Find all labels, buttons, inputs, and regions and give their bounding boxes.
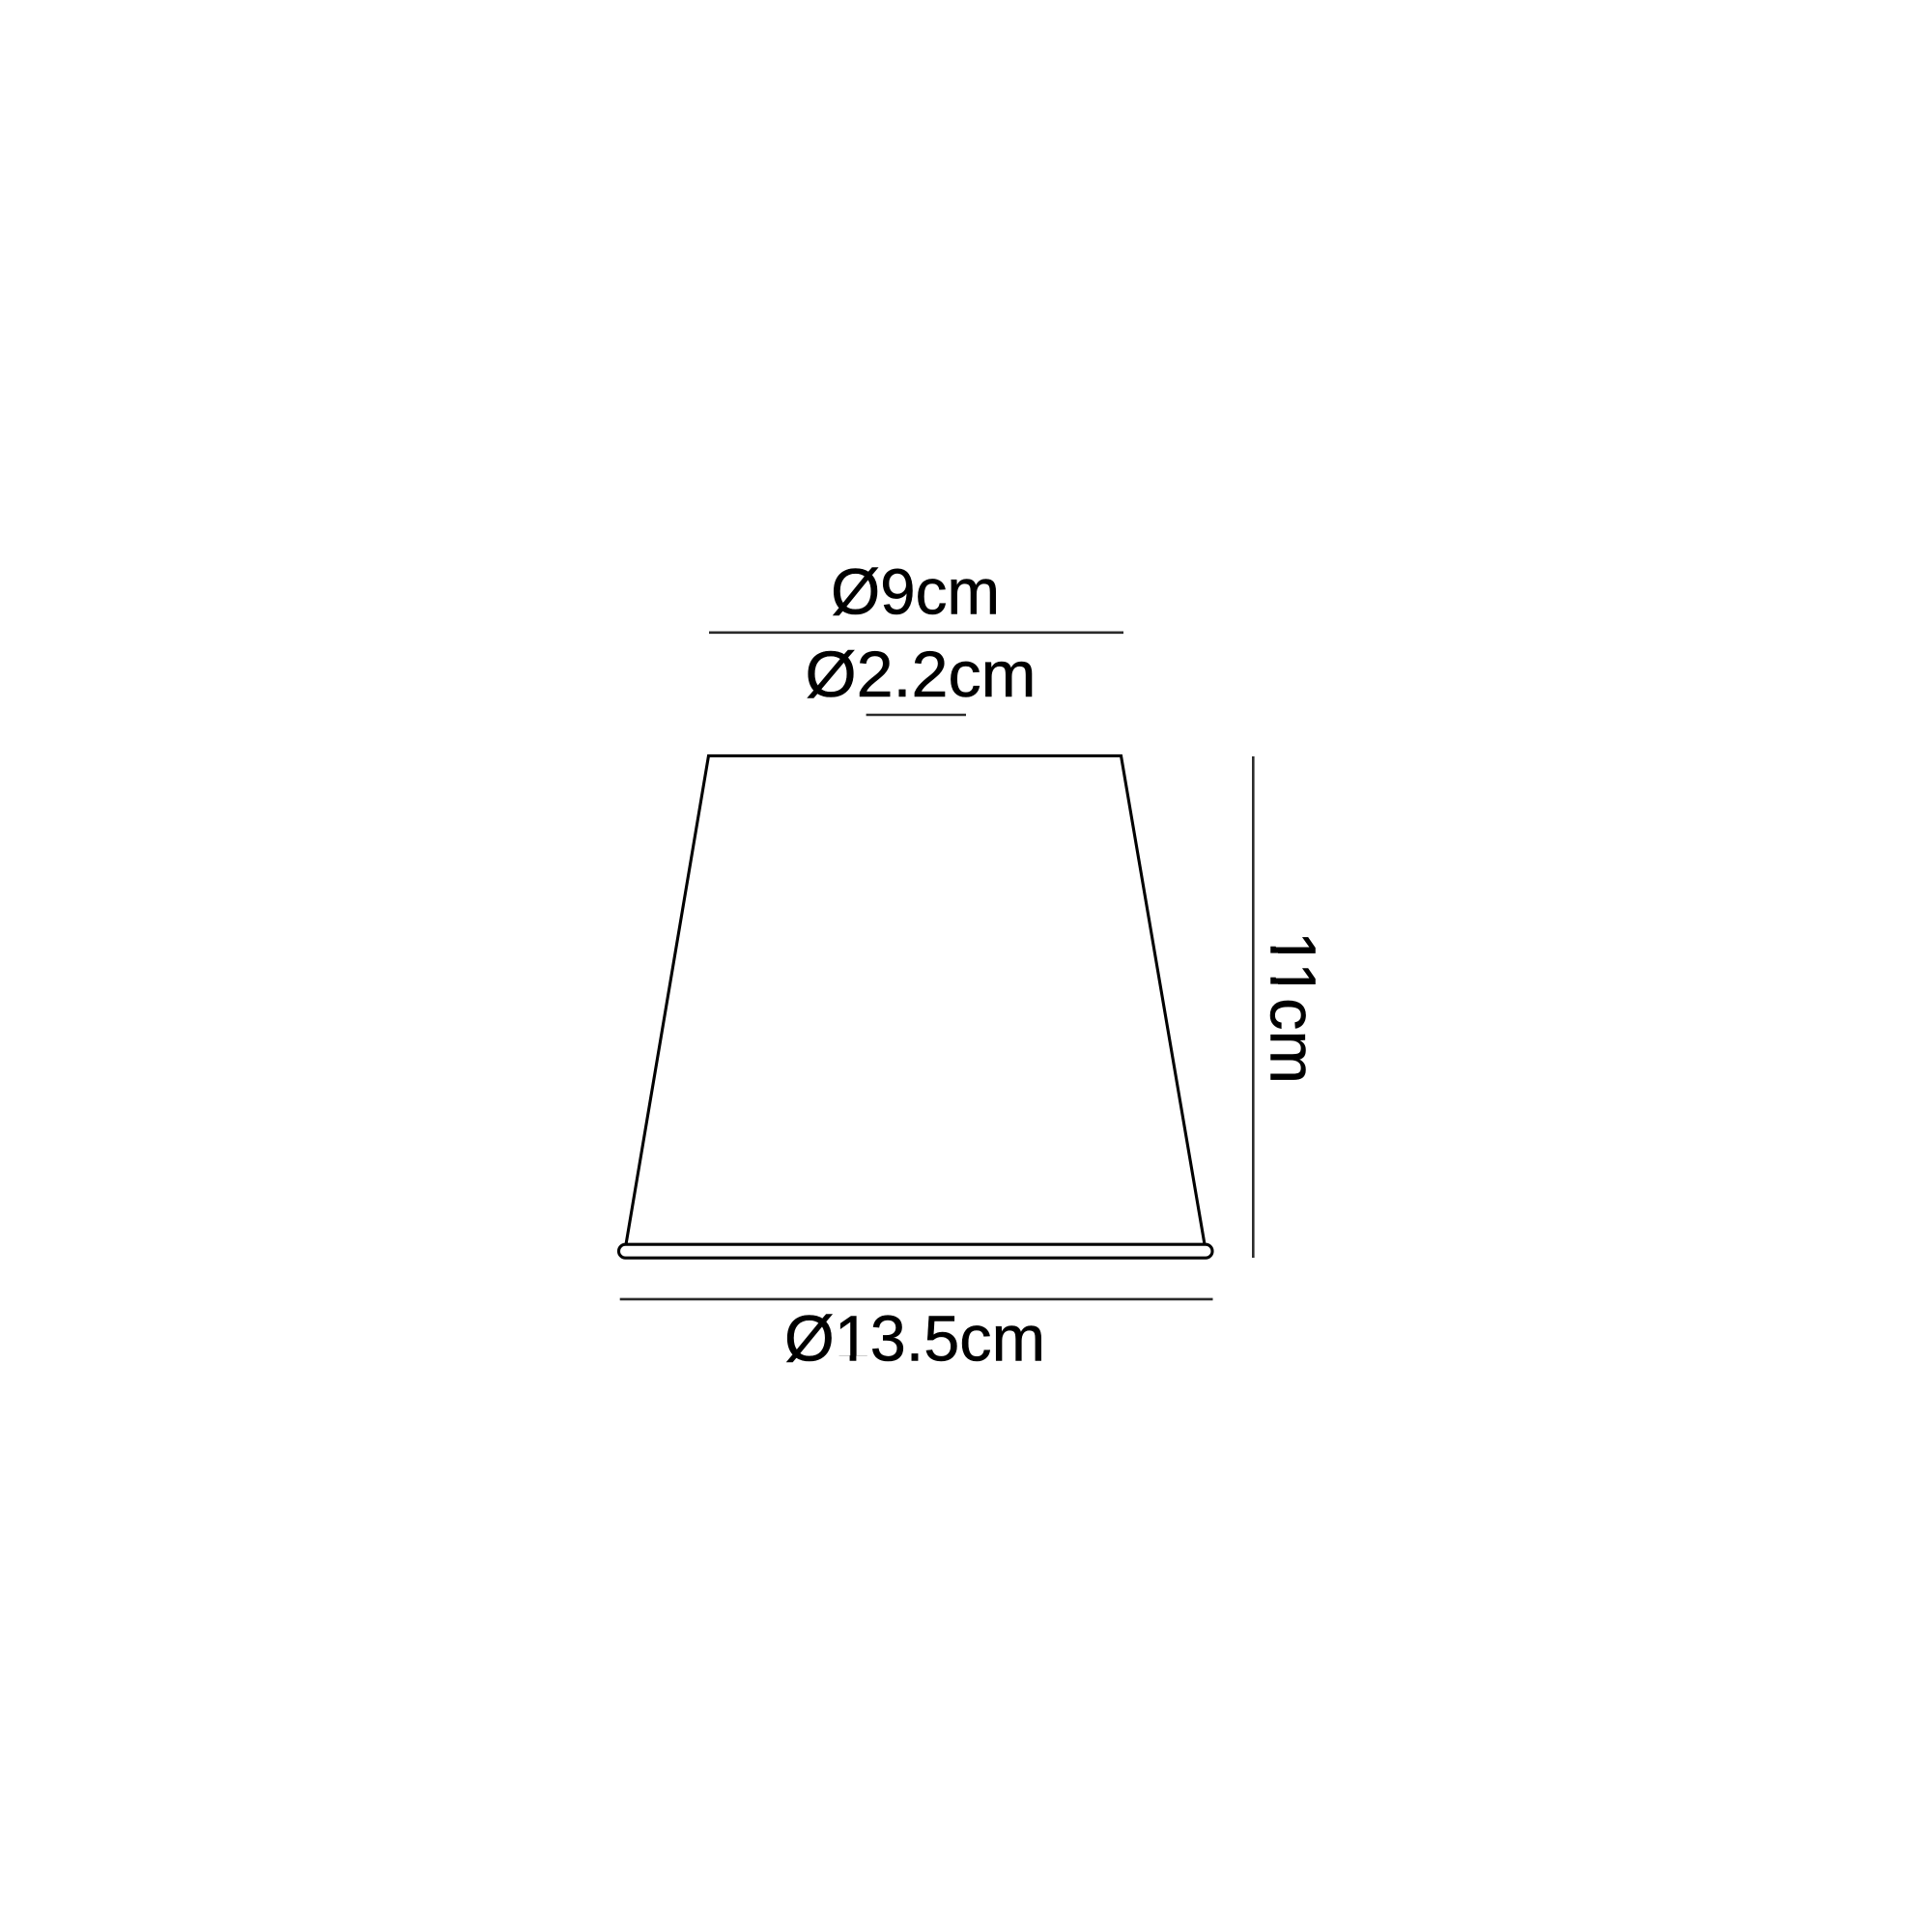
svg-text:Ø2.2cm: Ø2.2cm (806, 639, 1037, 711)
svg-text:11cm: 11cm (1257, 931, 1329, 1084)
svg-text:Ø9cm: Ø9cm (831, 556, 1000, 629)
svg-text:Ø13.5cm: Ø13.5cm (784, 1303, 1045, 1376)
